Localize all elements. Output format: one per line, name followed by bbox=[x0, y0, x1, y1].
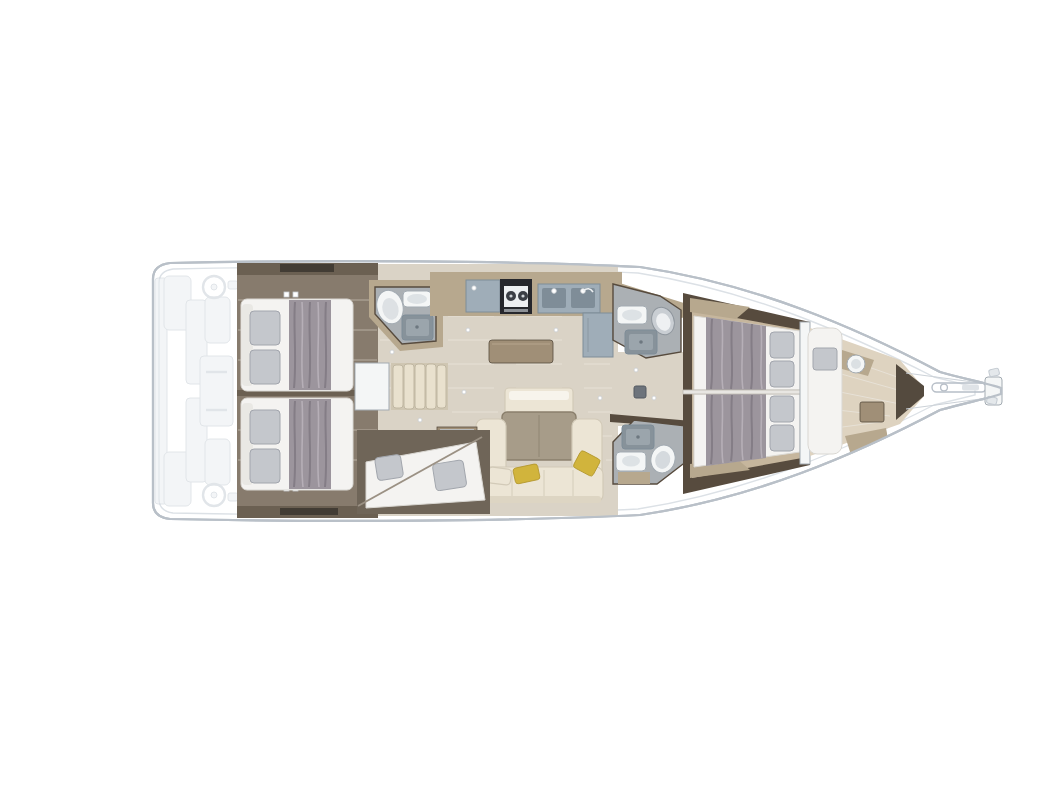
step bbox=[426, 364, 436, 409]
shower-tray-icon bbox=[625, 330, 657, 354]
bunk-cabin-lower bbox=[357, 430, 490, 514]
helm-console-lower bbox=[205, 439, 230, 485]
pillow bbox=[770, 425, 794, 451]
duvet bbox=[706, 394, 766, 466]
berth bbox=[808, 328, 842, 454]
pillow bbox=[250, 410, 280, 444]
helm-console-upper bbox=[205, 297, 230, 343]
yacht-floor-plan bbox=[0, 0, 1048, 786]
companionway bbox=[355, 363, 448, 410]
pillow bbox=[770, 332, 794, 358]
helm-wheel-lower-hub bbox=[211, 492, 217, 498]
interior bbox=[237, 263, 924, 518]
washbasin-icon bbox=[617, 306, 647, 324]
cream-pillow bbox=[487, 467, 512, 486]
center-divider bbox=[683, 390, 810, 394]
shower-tray-icon bbox=[402, 315, 433, 340]
engine-box bbox=[355, 363, 389, 410]
step bbox=[404, 364, 414, 409]
pillow bbox=[770, 361, 794, 387]
worktop bbox=[466, 280, 500, 312]
step bbox=[393, 365, 403, 408]
helm-wheel-upper-hub bbox=[211, 284, 217, 290]
forward-cabin bbox=[683, 293, 810, 494]
pillow bbox=[250, 350, 280, 384]
washbasin-icon bbox=[403, 291, 431, 307]
hatch-lower bbox=[280, 508, 338, 515]
winch-lower bbox=[228, 493, 238, 501]
winch-upper bbox=[228, 281, 238, 289]
step bbox=[437, 365, 446, 408]
light-fitting bbox=[284, 292, 289, 297]
berth-cushion bbox=[813, 348, 837, 370]
forepeak-table bbox=[860, 402, 884, 422]
step bbox=[415, 364, 425, 409]
double-sink-icon bbox=[538, 284, 600, 313]
pillow bbox=[432, 460, 467, 492]
companionway-steps bbox=[391, 363, 448, 410]
hatch-upper bbox=[280, 264, 334, 272]
aft-bed-upper bbox=[241, 299, 353, 391]
shower-tray-icon bbox=[622, 425, 654, 449]
cockpit-table bbox=[200, 356, 233, 426]
pillow bbox=[770, 396, 794, 422]
anchor-roller bbox=[962, 385, 979, 391]
pillow bbox=[250, 311, 280, 345]
duvet bbox=[706, 317, 766, 390]
round-washbasin-icon bbox=[847, 355, 865, 373]
stove-icon bbox=[500, 279, 532, 314]
mast-post bbox=[634, 386, 646, 398]
sofa-front-edge bbox=[478, 496, 601, 503]
light-fitting bbox=[293, 292, 298, 297]
fitting bbox=[472, 286, 476, 290]
washbasin-icon bbox=[616, 452, 646, 471]
pillow bbox=[250, 449, 280, 483]
bench-cushion bbox=[509, 391, 569, 400]
vanity-base bbox=[618, 472, 650, 484]
bow-cleat-upper bbox=[988, 368, 999, 377]
yacht-floorplan-page bbox=[0, 0, 1048, 786]
aft-bed-lower bbox=[241, 398, 353, 490]
pillow bbox=[374, 454, 403, 481]
